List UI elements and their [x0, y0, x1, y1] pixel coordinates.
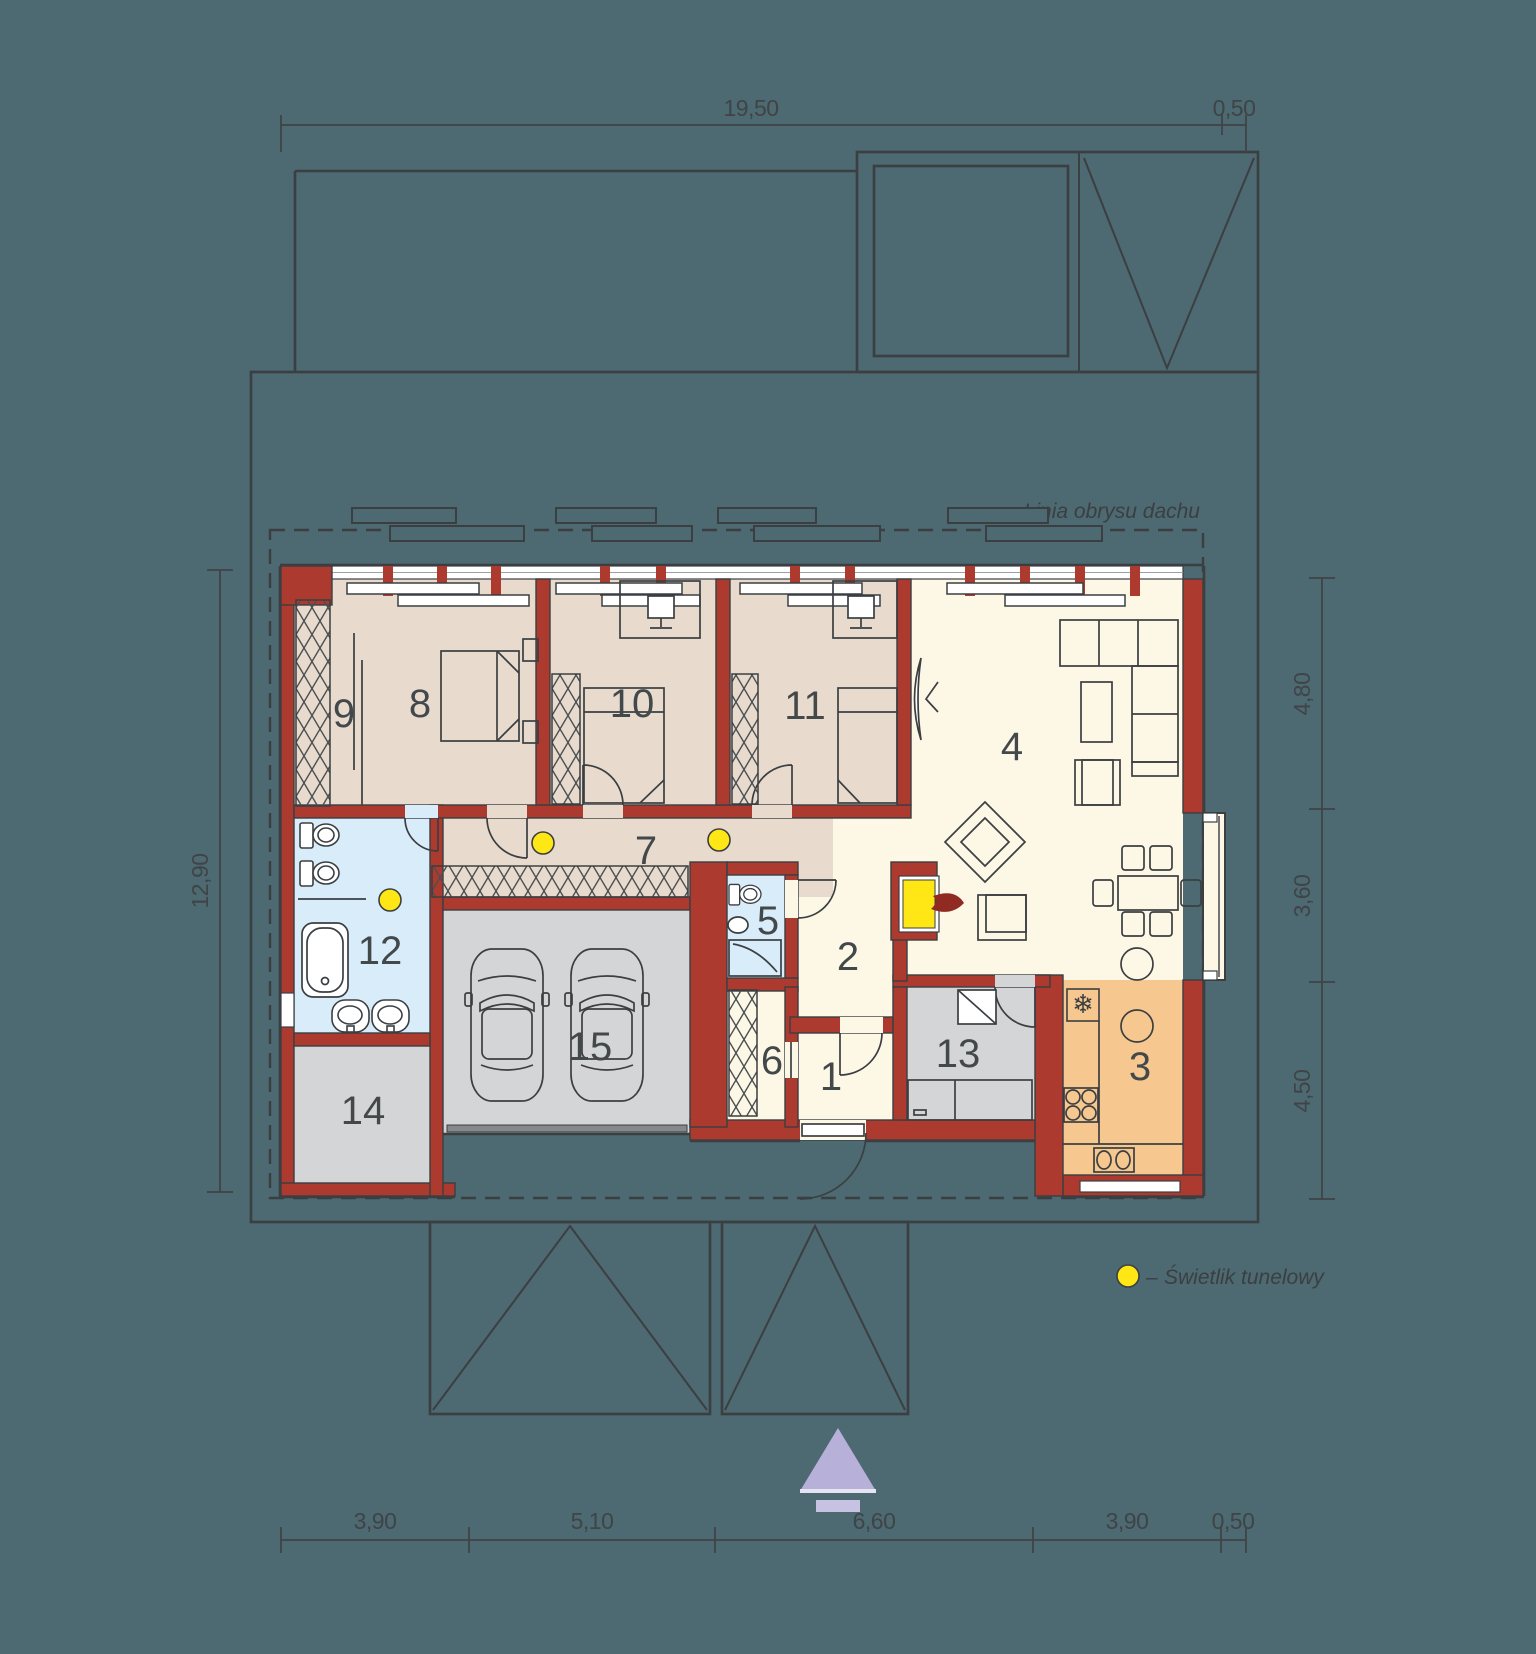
dim-bottom-0: 3,90	[354, 1508, 397, 1534]
dimension-right: 4,80 3,60 4,50	[1289, 578, 1335, 1199]
southwest-wall	[281, 1183, 455, 1196]
site-fence-line	[295, 171, 857, 372]
skylight-dot-bathroom	[379, 889, 401, 911]
wall-11-4	[897, 579, 911, 805]
skylight-dot-corridor-1	[532, 832, 554, 854]
site-carport-left	[430, 1222, 710, 1414]
legend-separator: –	[1145, 1266, 1158, 1289]
door-opening-10	[583, 805, 623, 818]
roof-outline-label: Linia obrysu dachu	[1024, 500, 1201, 523]
label-room-2: 2	[837, 935, 859, 979]
entrance-threshold	[802, 1124, 864, 1136]
label-room-13: 13	[936, 1032, 981, 1076]
wall-10-11	[716, 579, 730, 805]
dimension-left: 12,90	[187, 570, 233, 1192]
dim-right-2: 4,50	[1289, 1070, 1315, 1113]
dimension-top: 19,50 0,50	[281, 95, 1255, 152]
dim-right-1: 3,60	[1289, 875, 1315, 918]
wall-8-10	[536, 579, 550, 805]
wardrobe-room9	[296, 600, 330, 806]
door-opening-8	[487, 805, 527, 818]
legend-skylight-dot	[1117, 1265, 1139, 1287]
basin-1	[332, 1000, 369, 1032]
label-room-3: 3	[1129, 1045, 1151, 1089]
door-opening-11	[752, 805, 792, 818]
roof-valley-symbol	[1084, 158, 1254, 368]
kitchen-south-window	[1080, 1181, 1180, 1192]
label-room-7: 7	[635, 829, 657, 873]
west-wall	[281, 566, 294, 1196]
garage-east-wall	[690, 862, 727, 1127]
fireplace-stub-wall	[893, 937, 907, 981]
east-wall-upper	[1183, 579, 1203, 813]
label-room-12: 12	[358, 929, 403, 973]
dim-top-0: 19,50	[723, 95, 778, 121]
label-room-8: 8	[409, 682, 431, 726]
dim-bottom-3: 3,90	[1106, 1508, 1149, 1534]
northwest-corner-wall	[281, 566, 332, 605]
label-room-5: 5	[757, 899, 779, 943]
wardrobe-closet6	[729, 990, 757, 1116]
label-room-10: 10	[610, 682, 655, 726]
legend: – Świetlik tunelowy	[1117, 1265, 1325, 1289]
kitchen-west-wall	[1035, 975, 1063, 1196]
skylight-dot-corridor-2	[708, 829, 730, 851]
exterior-shutter-boxes	[352, 508, 1102, 541]
dim-left-0: 12,90	[187, 853, 213, 908]
entrance-arrow-triangle	[800, 1428, 876, 1491]
label-room-4: 4	[1001, 725, 1023, 769]
label-room-6: 6	[761, 1039, 783, 1083]
wardrobe-room10	[552, 674, 580, 804]
door-opening-12	[405, 805, 438, 818]
label-room-1: 1	[820, 1055, 842, 1099]
basin-2	[372, 1000, 409, 1032]
bath-south-wall	[294, 1033, 430, 1046]
door-opening-1	[840, 1017, 883, 1033]
bay-window	[1203, 813, 1225, 980]
floor-plan-canvas: Linia obrysu dachu 19,50 0,50 3,90 5,10 …	[0, 0, 1536, 1654]
dim-bottom-4: 0,50	[1212, 1508, 1255, 1534]
dim-bottom-1: 5,10	[571, 1508, 614, 1534]
wardrobe-room11	[732, 674, 758, 804]
east-wall-lower	[1183, 980, 1203, 1196]
bath-garage-wall	[430, 805, 443, 1196]
garage-door	[447, 1125, 687, 1132]
entrance-arrow	[800, 1428, 876, 1512]
entrance-door-swing	[800, 1133, 866, 1199]
site-outbuilding	[857, 152, 1258, 372]
label-room-11: 11	[784, 684, 826, 728]
floor-garage-15	[443, 910, 690, 1133]
bathroom-west-window	[281, 993, 294, 1027]
wc5-north-wall	[727, 862, 798, 875]
dim-right-0: 4,80	[1289, 673, 1315, 716]
utility13-west-wall	[893, 987, 907, 1120]
dimension-bottom: 3,90 5,10 6,60 3,90 0,50	[281, 1508, 1254, 1553]
door-opening-5	[785, 880, 798, 918]
freezer-snowflake-icon: ❄	[1072, 989, 1094, 1019]
entrance-arrow-bar	[816, 1500, 860, 1512]
legend-skylight-label: Świetlik tunelowy	[1164, 1265, 1325, 1289]
dim-top-1: 0,50	[1213, 95, 1256, 121]
label-room-14: 14	[341, 1089, 386, 1133]
label-room-15: 15	[568, 1025, 613, 1069]
label-room-9: 9	[333, 692, 355, 736]
site-carport-right	[722, 1222, 908, 1414]
floor-plan-drawing: Linia obrysu dachu 19,50 0,50 3,90 5,10 …	[0, 0, 1536, 1654]
door-opening-13	[995, 975, 1035, 987]
garage-north-wall	[443, 897, 690, 910]
